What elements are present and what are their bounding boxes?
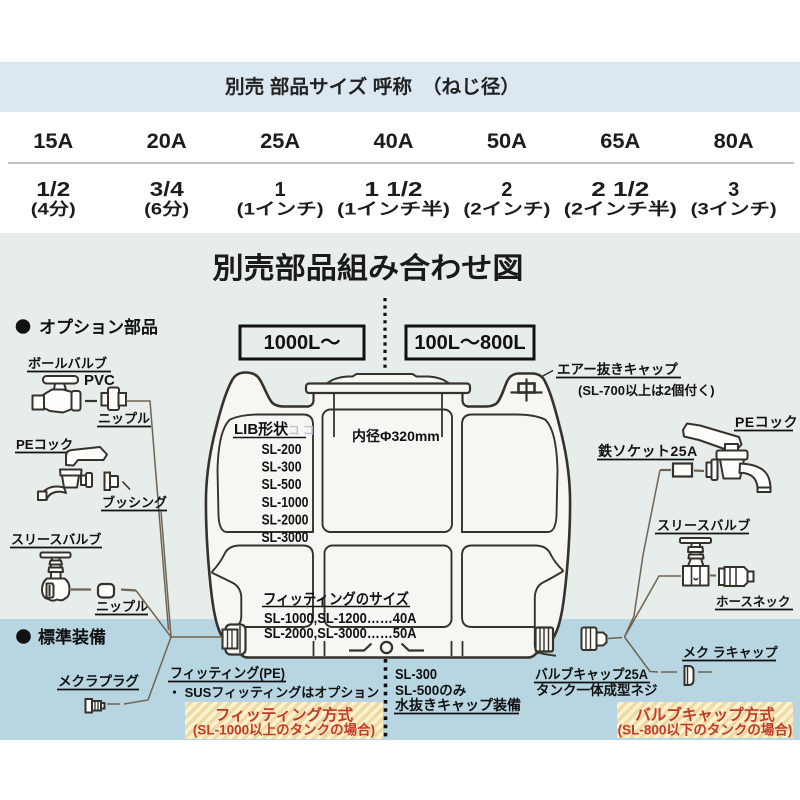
svg-text:2: 2 [501, 179, 512, 201]
svg-text:SL-3000: SL-3000 [262, 529, 309, 546]
svg-text:オプション部品: オプション部品 [39, 317, 158, 337]
svg-text:SL-300: SL-300 [262, 459, 302, 476]
svg-text:標準装備: 標準装備 [38, 627, 106, 647]
svg-text:ブッシング: ブッシング [102, 495, 167, 510]
svg-text:(3インチ): (3インチ) [691, 201, 777, 219]
svg-text:(4分): (4分) [31, 200, 76, 219]
svg-text:・ SUSフィッティングはオプション: ・ SUSフィッティングはオプション [168, 685, 379, 700]
svg-text:ホースネック: ホースネック [716, 595, 790, 609]
svg-text:PEコック: PEコック [735, 414, 798, 430]
svg-text:別売 部品サイズ 呼称 （ねじ径）: 別売 部品サイズ 呼称 （ねじ径） [225, 75, 520, 98]
svg-text:(1インチ半): (1インチ半) [337, 199, 450, 219]
svg-text:SL-300: SL-300 [395, 667, 437, 683]
svg-text:PVC: PVC [84, 372, 115, 389]
svg-text:SL-2000,SL-3000……50A: SL-2000,SL-3000……50A [264, 626, 417, 642]
svg-text:SL-500: SL-500 [262, 476, 302, 493]
svg-text:別売部品組み合わせ図: 別売部品組み合わせ図 [213, 251, 524, 285]
svg-text:水抜きキャップ装備: 水抜きキャップ装備 [395, 697, 521, 713]
svg-text:バルブキャップ25A: バルブキャップ25A [535, 666, 648, 682]
svg-text:(1インチ): (1インチ) [237, 201, 324, 219]
svg-text:2 1/2: 2 1/2 [591, 179, 649, 201]
svg-text:1: 1 [275, 179, 286, 201]
svg-text:フィッティングのサイズ: フィッティングのサイズ [263, 590, 409, 608]
svg-text:1/2: 1/2 [36, 179, 70, 201]
svg-text:40A: 40A [374, 129, 414, 153]
svg-text:ニップル: ニップル [96, 599, 148, 614]
svg-text:PEコック: PEコック [16, 437, 73, 452]
svg-text:(SL-1000以上のタンクの場合): (SL-1000以上のタンクの場合) [193, 722, 375, 738]
svg-text:25A: 25A [260, 129, 300, 153]
svg-text:(2インチ): (2インチ) [463, 201, 550, 219]
svg-text:バルブキャップ方式: バルブキャップ方式 [635, 705, 775, 724]
svg-text:スリースバルブ: スリースバルブ [657, 518, 751, 533]
svg-text:メク ラキャップ: メク ラキャップ [683, 645, 779, 660]
svg-text:20A: 20A [147, 129, 187, 153]
svg-text:80A: 80A [714, 129, 754, 153]
svg-text:SL-2000: SL-2000 [262, 511, 309, 528]
svg-text:フィッティング方式: フィッティング方式 [215, 705, 354, 724]
svg-text:内径Φ320mm: 内径Φ320mm [352, 428, 440, 444]
svg-text:65A: 65A [600, 129, 640, 153]
svg-text:(6分): (6分) [144, 200, 189, 219]
svg-text:1000L～: 1000L～ [264, 332, 341, 354]
svg-text:ニップル: ニップル [98, 411, 150, 426]
svg-text:SL-500のみ: SL-500のみ [395, 683, 467, 698]
svg-text:(SL-700以上は2個付く): (SL-700以上は2個付く) [578, 383, 715, 398]
svg-text:100L～800L: 100L～800L [414, 332, 525, 354]
svg-text:SL-1000: SL-1000 [262, 494, 309, 511]
svg-text:フィッティング(PE): フィッティング(PE) [170, 665, 285, 681]
svg-text:1 1/2: 1 1/2 [365, 179, 423, 201]
svg-text:(SL-800以下のタンクの場合): (SL-800以下のタンクの場合) [618, 722, 793, 738]
svg-text:スリースバルブ: スリースバルブ [11, 532, 101, 547]
svg-text:3: 3 [728, 179, 739, 201]
svg-text:15A: 15A [33, 129, 73, 153]
svg-text:SL-200: SL-200 [262, 441, 302, 458]
svg-text:鉄ソケット25A: 鉄ソケット25A [598, 443, 698, 459]
svg-text:(2インチ半): (2インチ半) [564, 199, 677, 219]
svg-text:SL-1000,SL-1200……40A: SL-1000,SL-1200……40A [264, 611, 417, 627]
svg-text:タンク一体成型ネジ: タンク一体成型ネジ [536, 682, 658, 698]
svg-text:メクラプラグ: メクラプラグ [58, 673, 139, 689]
svg-text:3/4: 3/4 [150, 179, 185, 201]
svg-text:50A: 50A [487, 129, 527, 153]
svg-text:ボールバルブ: ボールバルブ [28, 355, 108, 371]
svg-text:エアー抜きキャップ: エアー抜きキャップ [557, 361, 678, 377]
